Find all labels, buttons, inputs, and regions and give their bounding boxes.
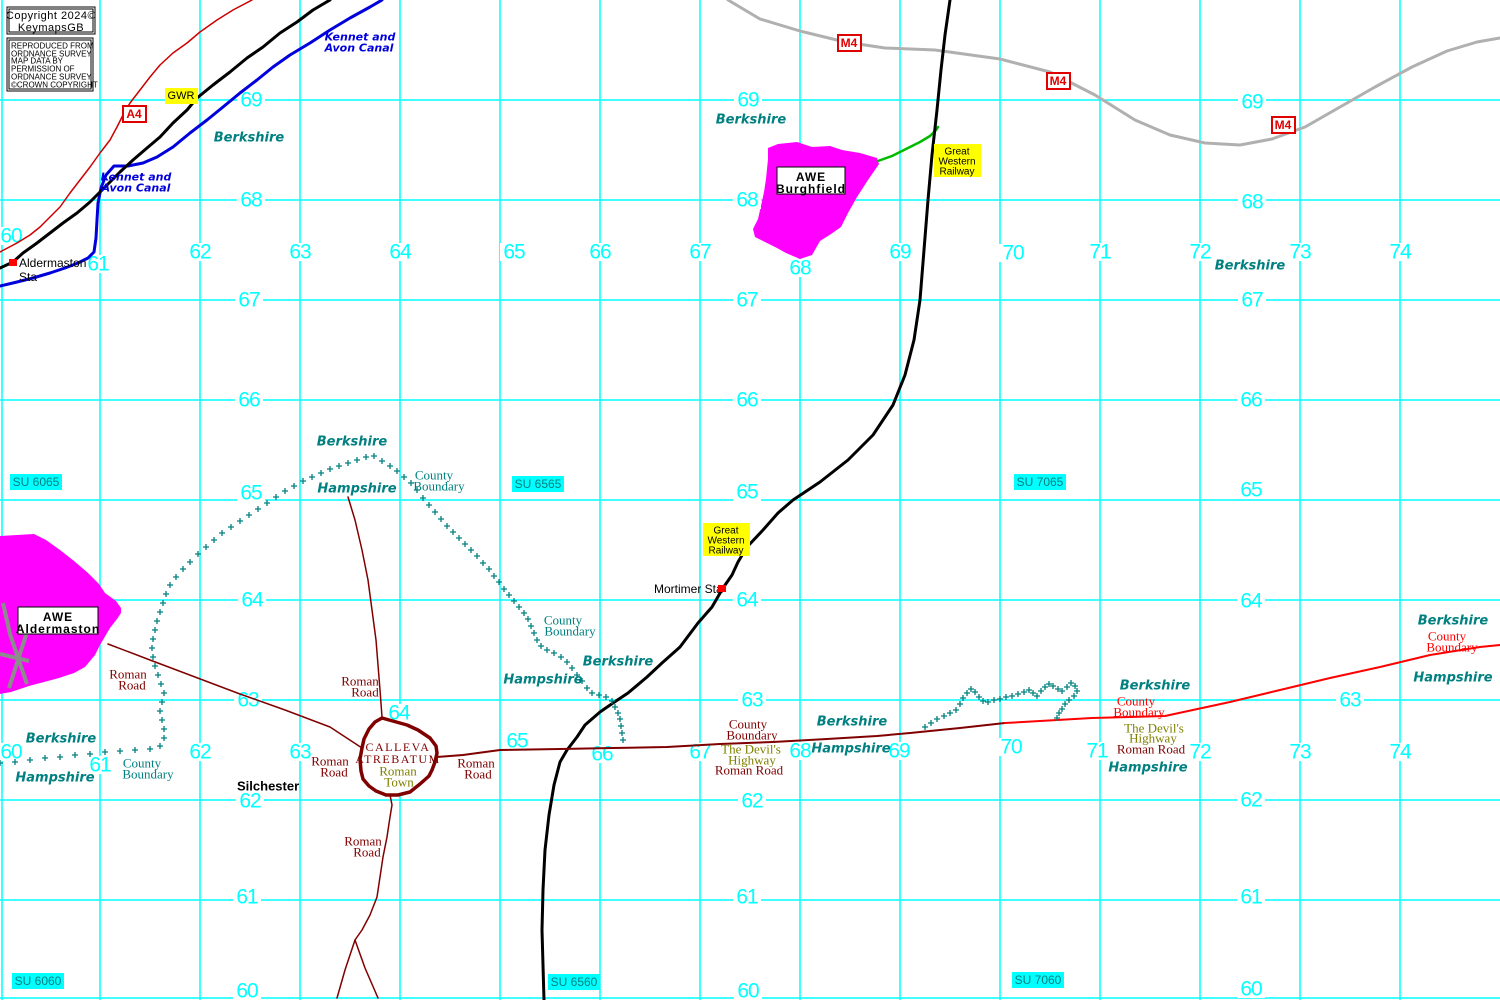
county-name-label: Berkshire [26,732,97,747]
grid-number: 72 [1189,741,1211,764]
su-grid-label: SU 6060 [15,974,62,988]
grid-number: 72 [1189,241,1211,264]
grid-number: 64 [736,589,759,612]
m4-badge-text: M4 [841,36,858,50]
county-name-label: Hampshire [503,673,582,688]
county-name-label: Hampshire [1108,761,1187,776]
grid-number: 64 [1240,590,1263,613]
grid-number: 69 [1241,91,1263,114]
county-name-label: Hampshire [811,742,890,757]
great-western-railway-label: Railway [708,546,743,557]
place-name-label: Silchester [237,779,299,794]
roman-road-label: Road [320,765,348,780]
awe-burghfield-label-text: Burghfield [776,182,846,196]
county-boundary-label: Boundary [726,728,778,743]
highway-label: Town [384,775,414,790]
grid-number: 62 [741,790,763,813]
roman-town-label: ATREBATUM [355,752,441,766]
grid-number: 66 [736,389,758,412]
grid-number: 66 [591,743,613,766]
county-name-label: Berkshire [583,655,654,670]
grid-number: 67 [736,289,758,312]
grid-number: 68 [1241,191,1263,214]
a4-badge-text: A4 [126,107,142,121]
station-label: Sta [19,270,37,284]
grid-number: 70 [1002,242,1024,265]
grid-number: 68 [789,257,811,280]
grid-number: 67 [238,289,260,312]
grid-number: 74 [1389,241,1412,264]
grid-number: 71 [1089,241,1111,264]
grid-number: 66 [1240,389,1262,412]
grid-number: 62 [189,741,211,764]
grid-number: 61 [236,886,258,909]
grid-number: 66 [238,389,260,412]
m4-badge-text: M4 [1275,118,1292,132]
aldermaston-station-marker [9,259,17,266]
county-boundary-label: Boundary [413,479,465,494]
grid-number: 67 [1241,289,1263,312]
county-name-label: Hampshire [15,771,94,786]
su-grid-label: SU 6560 [551,975,598,989]
grid-number: 71 [1086,740,1108,763]
grid-number: 64 [389,241,412,264]
county-boundary-label: Boundary [1426,640,1478,655]
grid-number: 61 [1240,886,1262,909]
county-name-label: Berkshire [716,113,787,128]
grid-number: 65 [503,241,525,264]
copyright-box-text: Copyright 2024© [6,10,96,22]
gwr-badge-text: GWR [168,90,195,102]
great-western-railway-label: Railway [939,167,974,178]
grid-number: 73 [1289,741,1311,764]
su-grid-label: SU 7060 [1015,973,1062,987]
grid-number: 68 [789,740,811,763]
county-name-label: Hampshire [317,482,396,497]
su-grid-label: SU 6065 [13,475,60,489]
grid-number: 63 [741,689,763,712]
grid-number: 65 [1240,479,1262,502]
highway-label: Highway [1129,731,1177,746]
os-licence-box-text: ©CROWN COPYRIGHT [11,81,98,90]
grid-number: 63 [289,741,311,764]
grid-number: 63 [289,241,311,264]
su-grid-label: SU 6565 [515,477,562,491]
station-label: Mortimer Sta [654,582,723,596]
grid-number: 69 [889,241,911,264]
grid-number: 69 [737,89,759,112]
grid-number: 60 [737,980,759,1000]
county-name-label: Berkshire [214,131,285,146]
mortimer-station-marker [718,585,726,592]
grid-number: 60 [236,980,258,1000]
county-name-label: Berkshire [1418,614,1489,629]
grid-number: 62 [189,241,211,264]
roman-road-label: Road [351,685,379,700]
county-name-label: Berkshire [817,715,888,730]
grid-number: 69 [888,740,910,763]
grid-number: 60 [0,225,22,248]
highway-label: Highway [728,753,776,768]
grid-number: 73 [1289,241,1311,264]
county-boundary-label: Boundary [122,767,174,782]
grid-number: 60 [0,741,22,764]
awe-aldermaston-label-text: Aldermaston [16,622,100,636]
roman-road-label: Road [353,845,381,860]
map-svg[interactable]: 6061626364656667686970717273746061626364… [0,0,1500,1000]
grid-number: 64 [241,589,264,612]
grid-number: 60 [1240,978,1262,1000]
county-name-label: Hampshire [1413,671,1492,686]
grid-number: 68 [736,189,758,212]
county-name-label: Berkshire [1120,679,1191,694]
os-map-canvas[interactable]: 6061626364656667686970717273746061626364… [0,0,1500,1000]
grid-number: 61 [736,886,758,909]
grid-number: 68 [240,189,262,212]
county-boundary-label: Boundary [1113,705,1165,720]
grid-number: 74 [1389,741,1412,764]
su-grid-label: SU 7065 [1017,475,1064,489]
county-boundary-label: Boundary [544,624,596,639]
grid-number: 65 [736,481,758,504]
county-name-label: Berkshire [317,435,388,450]
grid-number: 62 [1240,789,1262,812]
county-name-label: Berkshire [1215,259,1286,274]
grid-number: 63 [1339,689,1361,712]
grid-number: 67 [689,241,711,264]
station-label: Aldermaston [19,256,86,270]
roman-road-label: Road [464,767,492,782]
grid-number: 65 [240,482,262,505]
grid-number: 66 [589,241,611,264]
m4-badge-text: M4 [1050,74,1067,88]
grid-number: 70 [1000,736,1022,759]
canal-name-label: Avon Canal [101,182,171,195]
copyright-box-text: KeymapsGB [18,22,84,34]
roman-road-label: Road [118,678,146,693]
canal-name-label: Avon Canal [324,42,394,55]
